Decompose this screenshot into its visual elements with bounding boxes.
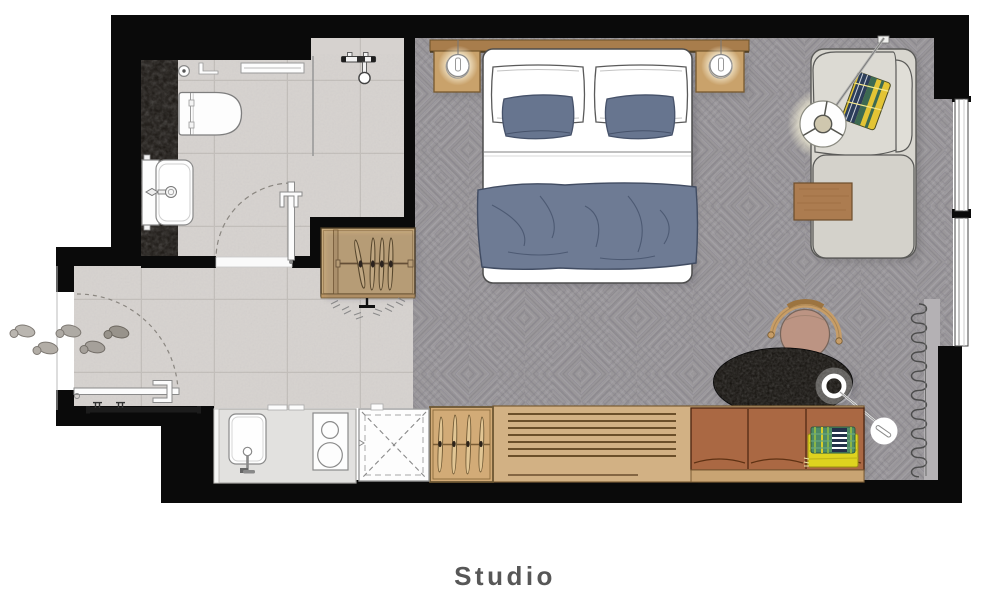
svg-text:Studio: Studio	[454, 561, 556, 591]
